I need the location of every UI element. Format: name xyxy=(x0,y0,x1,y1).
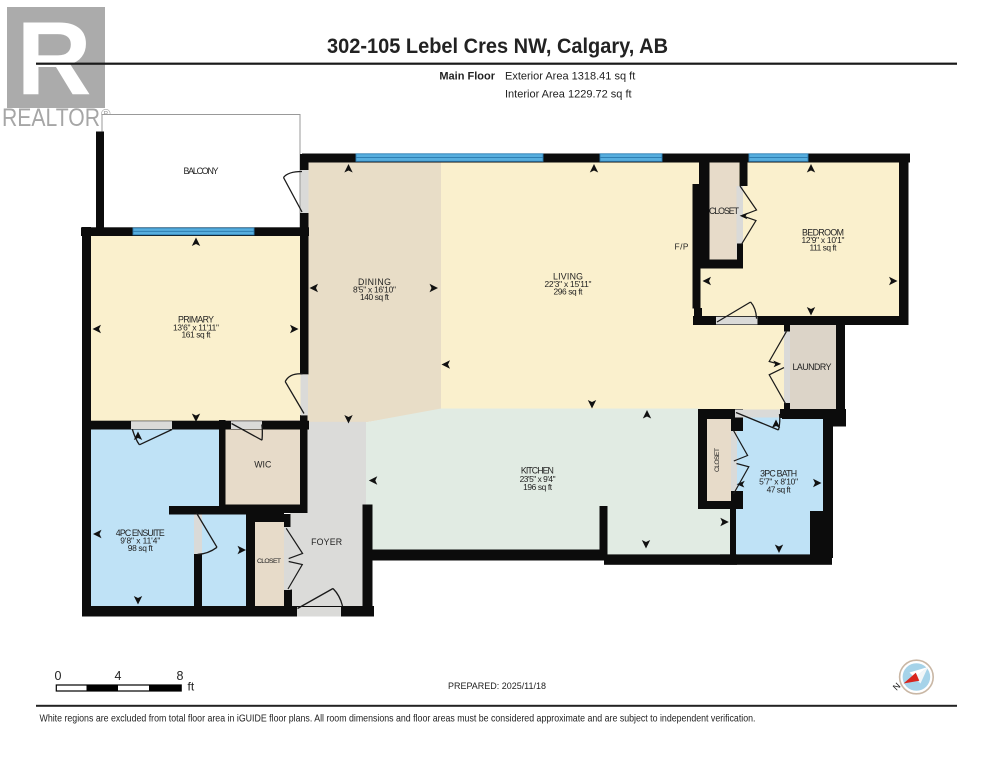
svg-text:111 sq ft: 111 sq ft xyxy=(810,242,838,252)
svg-text:FOYER: FOYER xyxy=(311,537,342,547)
svg-text:PREPARED: 2025/11/18: PREPARED: 2025/11/18 xyxy=(448,681,546,691)
svg-text:ft: ft xyxy=(188,680,195,694)
svg-text:296 sq ft: 296 sq ft xyxy=(554,286,584,296)
svg-text:F/P: F/P xyxy=(675,242,689,252)
svg-text:Exterior Area 1318.41 sq ft: Exterior Area 1318.41 sq ft xyxy=(505,71,635,83)
svg-text:CLOSET: CLOSET xyxy=(257,558,281,565)
svg-text:140 sq ft: 140 sq ft xyxy=(360,292,390,302)
svg-text:Interior Area 1229.72 sq ft: Interior Area 1229.72 sq ft xyxy=(505,89,632,101)
svg-text:47 sq ft: 47 sq ft xyxy=(767,485,792,495)
svg-text:CLOSET: CLOSET xyxy=(709,206,740,216)
svg-text:302-105 Lebel Cres NW, Calgary: 302-105 Lebel Cres NW, Calgary, AB xyxy=(327,35,668,58)
svg-text:REALTOR: REALTOR xyxy=(2,104,100,132)
svg-text:LAUNDRY: LAUNDRY xyxy=(793,362,832,372)
svg-text:WIC: WIC xyxy=(254,460,272,470)
svg-text:Main Floor: Main Floor xyxy=(439,71,495,83)
svg-text:8: 8 xyxy=(177,669,184,683)
svg-text:4: 4 xyxy=(115,669,122,683)
svg-text:R: R xyxy=(16,1,91,117)
svg-text:CLOSET: CLOSET xyxy=(714,448,721,472)
svg-text:196 sq ft: 196 sq ft xyxy=(523,482,553,492)
svg-text:161 sq ft: 161 sq ft xyxy=(182,330,212,340)
svg-text:98 sq ft: 98 sq ft xyxy=(128,543,154,553)
svg-text:White regions are excluded fro: White regions are excluded from total fl… xyxy=(40,713,756,724)
svg-text:0: 0 xyxy=(55,669,62,683)
svg-text:BALCONY: BALCONY xyxy=(184,166,219,176)
